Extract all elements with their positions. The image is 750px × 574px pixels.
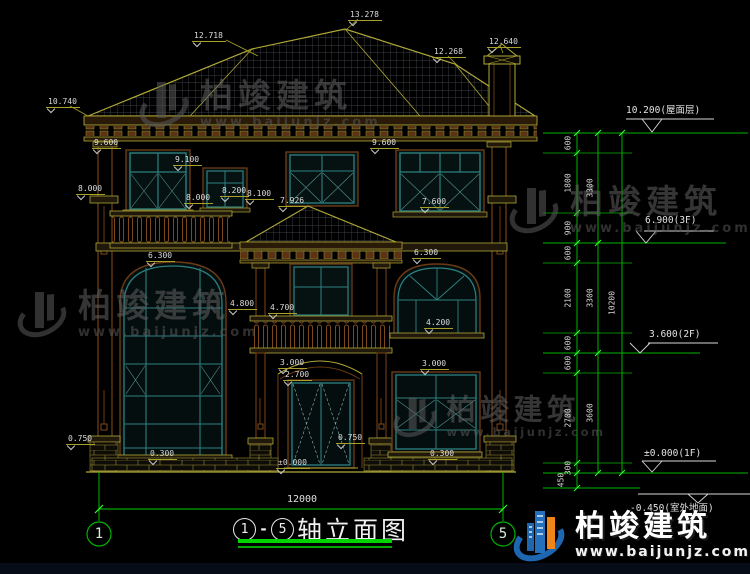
axis-bubble-1: 1 — [90, 526, 108, 542]
chain-dim: 600 — [564, 136, 573, 150]
site-logo: 柏竣建筑 www.baijunjz.com — [513, 503, 750, 567]
elevation-label: 3.000 — [278, 358, 307, 369]
balcony-left — [110, 211, 232, 248]
elevation-label: 8.000 — [184, 193, 213, 204]
chain-dim: 600 — [564, 356, 573, 370]
chain-total-dim: 3300 — [586, 178, 595, 197]
chain-dim: 2100 — [564, 288, 573, 307]
window-1f-right — [388, 372, 482, 457]
building-elevation-svg — [0, 0, 750, 574]
chain-total-dim: 3600 — [586, 403, 595, 422]
title-axis-from: 1 — [233, 518, 256, 541]
elevation-label: 10.740 — [46, 97, 80, 108]
elevation-label: 13.278 — [348, 10, 382, 21]
elevation-label: 3.000 — [420, 359, 449, 370]
level-label: 3.600(2F) — [649, 329, 700, 340]
chain-total-dim: 3300 — [586, 288, 595, 307]
title-axis-to: 5 — [271, 518, 294, 541]
elevation-label: 4.700 — [268, 303, 297, 314]
level-label: ±0.000(1F) — [644, 448, 701, 459]
elevation-label: 6.300 — [412, 248, 441, 259]
elevation-label: 7.926 — [278, 196, 307, 207]
chain-dim: 600 — [564, 246, 573, 260]
elevation-label: 8.000 — [76, 184, 105, 195]
elevation-label: 9.600 — [92, 138, 121, 149]
chimney — [484, 44, 520, 116]
elevation-label: 12.718 — [192, 31, 226, 42]
main-eaves-cornice — [84, 116, 537, 141]
elevation-label: 8.100 — [245, 189, 274, 200]
porch-roof — [240, 206, 402, 263]
main-roof — [70, 19, 535, 116]
cad-elevation-drawing: 柏竣建筑 www.baijunjz.com 柏竣建筑 www.baijunjz.… — [0, 0, 750, 574]
elevation-label: 0.750 — [66, 434, 95, 445]
level-label: 6.900(3F) — [645, 215, 696, 226]
chain-dim: 900 — [564, 221, 573, 235]
elevation-label: 0.300 — [428, 449, 457, 460]
site-logo-url: www.baijunjz.com — [575, 544, 750, 560]
elevation-label: 9.600 — [370, 138, 399, 149]
chain-dim: 450 — [557, 473, 566, 487]
elevation-label: 12.640 — [487, 37, 521, 48]
site-logo-brand: 柏竣建筑 — [575, 511, 750, 543]
title-underline-thin — [238, 546, 392, 548]
title-dash: - — [259, 520, 268, 538]
overall-width-dim: 12000 — [272, 494, 332, 505]
elevation-label: 2.700 — [283, 370, 312, 381]
window-2f-center — [290, 264, 352, 318]
elevation-label: 6.300 — [146, 251, 175, 262]
chain-dim: 1800 — [564, 173, 573, 192]
window-tall-left — [116, 262, 232, 461]
level-markers — [626, 119, 750, 503]
level-label: 10.200(屋面层) — [626, 102, 700, 116]
site-logo-icon — [513, 503, 567, 567]
elevation-label: ±0.000 — [276, 458, 310, 469]
elevation-label: 0.750 — [336, 433, 365, 444]
axis-bubble-5: 5 — [494, 526, 512, 542]
balcony-center — [250, 316, 392, 353]
elevation-label: 7.600 — [420, 197, 449, 208]
chain-total-dim: 10200 — [608, 291, 617, 315]
elevation-label: 4.200 — [424, 318, 453, 329]
elevation-label: 9.100 — [173, 155, 202, 166]
chain-dim: 2700 — [564, 408, 573, 427]
chain-dim: 600 — [564, 336, 573, 350]
title-underline-thick — [238, 539, 392, 543]
elevation-label: 4.800 — [228, 299, 257, 310]
bottom-strip — [0, 563, 750, 574]
elevation-label: 12.268 — [432, 47, 466, 58]
elevation-label: 0.300 — [148, 449, 177, 460]
